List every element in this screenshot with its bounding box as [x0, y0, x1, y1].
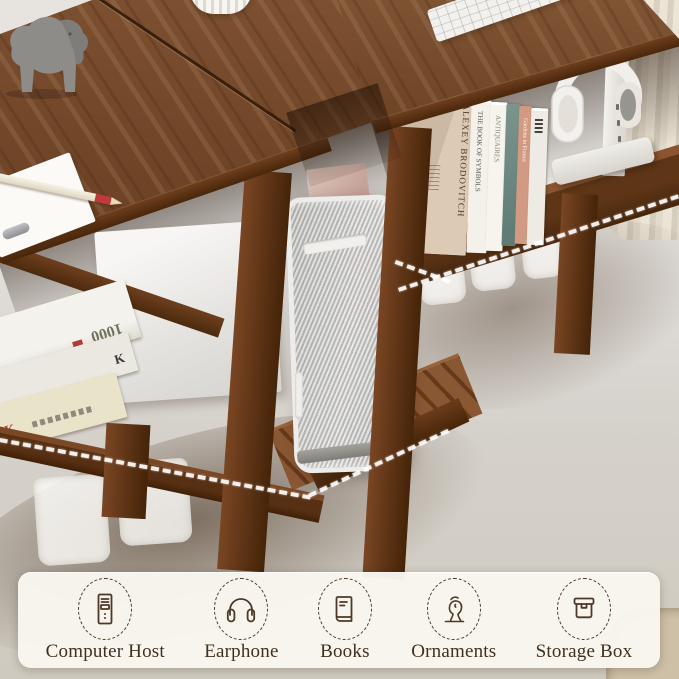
- feature-item-computer-host: Computer Host: [46, 578, 165, 663]
- feature-label: Ornaments: [411, 641, 496, 663]
- stand-port-dot: [618, 136, 621, 142]
- feature-item-earphone: Earphone: [204, 578, 278, 663]
- feature-label: Computer Host: [46, 641, 165, 663]
- book-spine-text: K: [113, 350, 127, 368]
- feature-item-ornaments: Ornaments: [411, 578, 496, 663]
- left-desk-leg: [102, 423, 151, 519]
- book-spine-title: Gardens in France: [518, 118, 528, 236]
- tower-ports: [295, 372, 303, 418]
- elephant-sculpture: [0, 8, 96, 100]
- product-photo-scene: ALEXEY BRODOVITCH THE BOOK OF SYMBOLS AN…: [0, 0, 679, 679]
- dashed-oval: [214, 578, 268, 640]
- computer-host-icon: [87, 591, 123, 627]
- dashed-oval: [318, 578, 372, 640]
- dashed-oval: [427, 578, 481, 640]
- dashed-oval: [557, 578, 611, 640]
- ornaments-icon: [436, 591, 472, 627]
- feature-label: Books: [320, 641, 370, 663]
- storage-box-icon: [566, 591, 602, 627]
- book-spine-title: THE BOOK OF SYMBOLS: [472, 111, 485, 247]
- stand-port-dot: [617, 120, 620, 126]
- dashed-oval: [78, 578, 132, 640]
- book-spine-title: ANTIQUAIRES: [490, 115, 502, 243]
- earphone-icon: [223, 591, 259, 627]
- books-icon: [327, 591, 363, 627]
- feature-legend-panel: Computer Host Earphone Bo: [18, 572, 660, 668]
- storage-bin: [33, 474, 111, 567]
- feature-item-books: Books: [318, 578, 372, 663]
- feature-label: Earphone: [204, 641, 278, 663]
- book-spine-smalltext: [32, 405, 95, 427]
- stand-port-dot: [616, 104, 619, 110]
- feature-item-storage-box: Storage Box: [536, 578, 633, 663]
- feature-label: Storage Box: [536, 641, 633, 663]
